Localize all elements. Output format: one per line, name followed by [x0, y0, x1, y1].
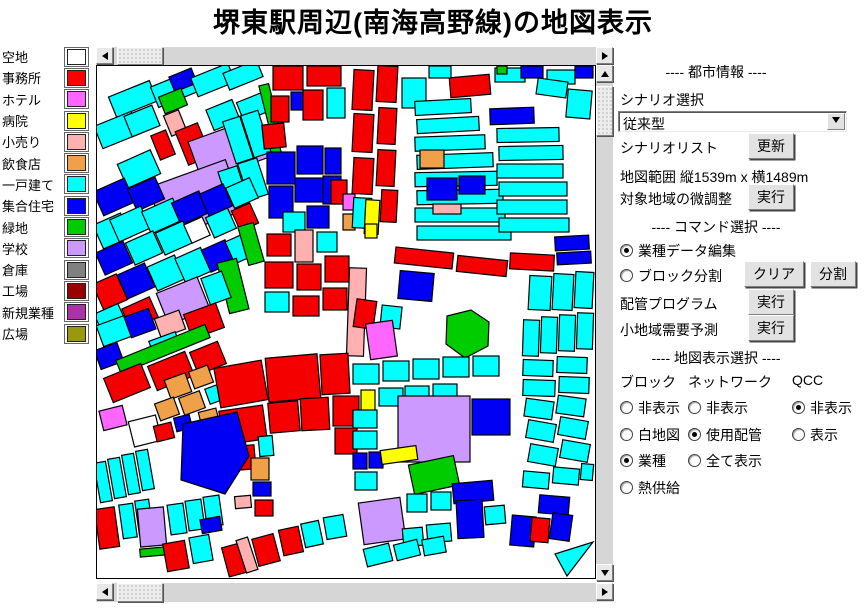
legend-color-icon	[67, 91, 86, 107]
map-parcel[interactable]	[528, 275, 552, 310]
demand-label: 小地域需要予測	[620, 322, 718, 338]
legend-item: 緑地	[2, 216, 89, 237]
map-parcel[interactable]	[295, 230, 313, 262]
legend-color-icon	[67, 198, 86, 214]
map-parcel[interactable]	[380, 190, 398, 223]
map-parcel[interactable]	[443, 357, 469, 377]
legend-item: 工場	[2, 280, 89, 301]
legend-item: 空地	[2, 46, 89, 67]
map-parcel[interactable]	[200, 516, 222, 533]
pipe-run-button[interactable]: 実行	[748, 289, 794, 315]
radio-label: 非表示	[706, 400, 748, 416]
map-parcel[interactable]	[293, 296, 319, 316]
map-parcel[interactable]	[297, 146, 323, 174]
legend-label: 新規業種	[2, 303, 64, 322]
map-parcel[interactable]	[522, 320, 539, 357]
legend-item: 倉庫	[2, 259, 89, 280]
map-parcel[interactable]	[499, 218, 569, 232]
map-parcel[interactable]	[394, 247, 453, 269]
radio-icon[interactable]	[688, 428, 701, 441]
map-parcel[interactable]	[449, 74, 491, 97]
legend-swatch-icon	[64, 68, 89, 88]
scroll-left-icon[interactable]	[96, 583, 113, 600]
map-parcel[interactable]	[295, 178, 325, 202]
radio-network-1[interactable]: 使用配管	[688, 425, 788, 452]
radio-label: 非表示	[638, 400, 680, 416]
map-parcel[interactable]	[376, 66, 398, 102]
map-parcel[interactable]	[140, 547, 167, 557]
map-parcel[interactable]	[417, 116, 480, 133]
map-parcel[interactable]	[417, 226, 511, 240]
map-parcel[interactable]	[427, 178, 457, 200]
radio-block-2[interactable]: 業種	[620, 451, 688, 478]
map-parcel[interactable]	[325, 148, 341, 174]
legend-swatch-icon	[64, 217, 89, 237]
map-parcel[interactable]	[355, 472, 377, 490]
map-parcel[interactable]	[353, 364, 379, 384]
legend-label: 学校	[2, 239, 64, 258]
pipe-label: 配管プログラム	[620, 296, 718, 312]
legend-color-icon	[67, 70, 86, 86]
radio-block-label: ブロック分割	[638, 268, 722, 284]
map-parcel[interactable]	[352, 114, 374, 153]
update-button[interactable]: 更新	[748, 133, 794, 159]
map-parcel[interactable]	[526, 420, 557, 443]
map-parcel[interactable]	[497, 127, 559, 142]
radio-network-2[interactable]: 全て表示	[688, 451, 788, 478]
map-parcel[interactable]	[267, 152, 295, 184]
map-parcel[interactable]	[327, 88, 345, 118]
map-parcel[interactable]	[407, 494, 427, 512]
map-parcel[interactable]	[363, 543, 393, 567]
map-parcel[interactable]	[580, 464, 593, 481]
legend-item: 小売り	[2, 131, 89, 152]
demand-row: 小地域需要予測 実行	[620, 320, 718, 340]
map-parcel[interactable]	[265, 262, 293, 288]
map-parcel[interactable]	[523, 359, 554, 376]
map-parcel[interactable]	[353, 410, 377, 428]
map-parcel[interactable]	[557, 356, 588, 373]
legend-item: 事務所	[2, 67, 89, 88]
chevron-down-icon	[832, 117, 840, 127]
scroll-up-icon[interactable]	[596, 65, 613, 82]
map-parcel[interactable]	[325, 256, 349, 282]
radio-icon[interactable]	[688, 454, 701, 467]
map-parcel[interactable]	[429, 66, 451, 78]
map-parcel[interactable]	[167, 503, 187, 535]
map-parcel[interactable]	[557, 251, 592, 265]
column-header-qcc: QCC	[788, 372, 866, 399]
column-header-network: ネットワーク	[688, 372, 788, 399]
map-parcel[interactable]	[189, 534, 213, 563]
radio-icon[interactable]	[792, 401, 805, 414]
map-parcel[interactable]	[273, 66, 303, 90]
legend-swatch-icon	[64, 281, 89, 301]
radio-block-1[interactable]: 白地図	[620, 425, 688, 452]
page-title: 堺東駅周辺(南海高野線)の地図表示	[0, 1, 866, 40]
map-parcel[interactable]	[283, 212, 305, 232]
left-arrow-icon	[98, 52, 108, 60]
map-parcel[interactable]	[393, 539, 420, 560]
adjust-label: 対象地域の微調整	[620, 191, 732, 207]
map-parcel[interactable]	[163, 540, 190, 571]
map-parcel[interactable]	[540, 317, 557, 354]
radio-icon[interactable]	[688, 401, 701, 414]
map-parcel[interactable]	[301, 520, 324, 547]
radio-empty-cell	[788, 478, 866, 505]
legend-swatch-icon	[64, 302, 89, 322]
split-button[interactable]: 分割	[810, 261, 856, 287]
right-arrow-icon	[602, 588, 612, 596]
legend-color-icon	[67, 113, 86, 129]
map-parcel[interactable]	[524, 398, 554, 420]
map-parcel[interactable]	[456, 255, 507, 276]
vscroll-thumb[interactable]	[596, 86, 613, 136]
map-parcel[interactable]	[377, 108, 397, 145]
map-parcel[interactable]	[119, 503, 138, 539]
scroll-right-icon[interactable]	[596, 47, 613, 64]
map-parcel[interactable]	[153, 422, 174, 442]
map-parcel[interactable]	[97, 507, 120, 549]
radio-icon[interactable]	[620, 428, 633, 441]
map-parcel[interactable]	[251, 458, 269, 480]
adjust-run-button[interactable]: 実行	[748, 184, 794, 210]
scenario-select[interactable]: 従来型	[618, 111, 847, 132]
hscroll-thumb-bottom[interactable]	[117, 583, 163, 602]
map-parcel[interactable]	[459, 176, 485, 194]
legend-swatch-icon	[64, 153, 89, 173]
map-parcel[interactable]	[253, 482, 271, 496]
map-parcel[interactable]	[433, 204, 461, 214]
legend-color-icon	[67, 176, 86, 192]
legend-label: 集合住宅	[2, 196, 64, 215]
map-parcel[interactable]	[415, 99, 472, 116]
map-parcel[interactable]	[265, 292, 289, 312]
map-parcel[interactable]	[352, 70, 374, 111]
map-parcel[interactable]	[376, 150, 396, 187]
radio-qcc-0[interactable]: 非表示	[788, 398, 866, 425]
scenario-selected-value: 従来型	[623, 114, 665, 134]
map-parcel[interactable]	[415, 135, 485, 151]
map-parcel[interactable]	[267, 234, 291, 256]
map-parcel[interactable]	[352, 158, 374, 195]
map-parcel[interactable]	[523, 379, 556, 396]
map-parcel[interactable]	[258, 435, 274, 456]
legend-color-icon	[67, 155, 86, 171]
map-parcel[interactable]	[181, 412, 249, 494]
column-header-block: ブロック	[620, 372, 688, 399]
map-parcel[interactable]	[104, 363, 151, 402]
map-parcel[interactable]	[307, 206, 329, 228]
scenario-list-label: シナリオリスト	[620, 140, 718, 156]
map-parcel[interactable]	[530, 517, 550, 542]
map-parcel[interactable]	[265, 354, 321, 402]
map-parcel[interactable]	[303, 90, 323, 120]
map-parcel[interactable]	[446, 310, 489, 358]
legend-swatch-icon	[64, 196, 89, 216]
legend-color-icon	[67, 326, 86, 342]
map-parcel[interactable]	[353, 453, 367, 469]
left-arrow-icon	[98, 588, 108, 596]
map-parcel[interactable]	[575, 66, 593, 78]
right-arrow-icon	[602, 52, 612, 60]
legend-item: 新規業種	[2, 302, 89, 323]
legend-label: 広場	[2, 324, 64, 343]
map-parcel[interactable]	[383, 361, 409, 381]
map-parcel[interactable]	[497, 200, 567, 214]
map-parcel[interactable]	[279, 526, 304, 556]
legend-swatch-icon	[64, 89, 89, 109]
map-parcel[interactable]	[473, 356, 499, 376]
up-arrow-icon	[601, 67, 609, 77]
map-parcel[interactable]	[472, 399, 510, 435]
hscroll-thumb-top[interactable]	[117, 47, 163, 65]
map-canvas[interactable]	[96, 65, 596, 579]
map-parcel[interactable]	[558, 417, 589, 440]
legend-swatch-icon	[64, 174, 89, 194]
map-parcel[interactable]	[558, 315, 575, 352]
map-parcel[interactable]	[456, 499, 484, 538]
legend-label: 倉庫	[2, 260, 64, 279]
legend-item: 集合住宅	[2, 195, 89, 216]
radio-label: 業種	[638, 453, 666, 469]
legend-color-icon	[67, 262, 86, 278]
map-viewport	[96, 47, 613, 603]
map-parcel[interactable]	[566, 89, 592, 119]
radio-block-0[interactable]: 非表示	[620, 398, 688, 425]
map-parcel[interactable]	[323, 288, 347, 310]
legend-item: 一戸建て	[2, 174, 89, 195]
legend-label: 空地	[2, 47, 64, 66]
radio-block-3[interactable]: 熱供給	[620, 478, 688, 505]
scenario-label: シナリオ選択	[620, 90, 704, 110]
clear-button[interactable]: クリア	[744, 261, 804, 287]
map-parcel[interactable]	[268, 401, 301, 434]
map-parcel[interactable]	[559, 376, 590, 393]
map-parcel[interactable]	[536, 78, 568, 98]
map-parcel[interactable]	[413, 359, 439, 379]
map-hscrollbar-top[interactable]	[96, 47, 613, 65]
radio-label: 熱供給	[638, 480, 680, 496]
radio-edit-label: 業種データ編集	[638, 243, 736, 259]
legend-color-icon	[67, 219, 86, 235]
map-parcel[interactable]	[555, 235, 590, 251]
map-parcel[interactable]	[549, 513, 572, 542]
map-parcel[interactable]	[300, 397, 330, 430]
scroll-left-icon[interactable]	[96, 47, 113, 64]
map-parcel[interactable]	[522, 471, 549, 489]
legend-item: 病院	[2, 110, 89, 131]
radio-label: 白地図	[638, 427, 680, 443]
demand-run-button[interactable]: 実行	[748, 315, 794, 341]
legend-color-icon	[67, 240, 86, 256]
map-parcel[interactable]	[323, 514, 347, 539]
radio-icon[interactable]	[620, 454, 633, 467]
map-parcel[interactable]	[556, 395, 586, 417]
pipe-row: 配管プログラム 実行	[620, 294, 718, 314]
legend-color-icon	[67, 304, 86, 320]
legend: 空地事務所ホテル病院小売り飲食店一戸建て集合住宅緑地学校倉庫工場新規業種広場	[2, 46, 89, 344]
legend-color-icon	[67, 134, 86, 150]
legend-swatch-icon	[64, 132, 89, 152]
map-parcel[interactable]	[271, 96, 289, 122]
radio-icon[interactable]	[620, 481, 633, 494]
map-parcel[interactable]	[576, 313, 593, 350]
radio-qcc-1[interactable]: 表示	[788, 425, 866, 452]
legend-item: 飲食店	[2, 152, 89, 173]
map-parcel[interactable]	[552, 274, 574, 311]
legend-item: 広場	[2, 323, 89, 344]
display-radio-grid: 非表示非表示非表示白地図使用配管表示業種全て表示熱供給	[620, 398, 866, 504]
map-parcel[interactable]	[422, 536, 446, 556]
adjust-row: 対象地域の微調整 実行	[620, 189, 732, 209]
map-parcel[interactable]	[538, 495, 569, 516]
radio-empty-cell	[688, 478, 788, 505]
map-parcel[interactable]	[560, 440, 591, 463]
map-parcel[interactable]	[484, 505, 505, 525]
down-arrow-icon	[601, 570, 609, 580]
map-hscrollbar-bottom[interactable]	[96, 583, 613, 602]
legend-item: ホテル	[2, 89, 89, 110]
section-command: ---- コマンド選択 ----	[616, 217, 816, 237]
map-parcel[interactable]	[99, 405, 127, 430]
legend-color-icon	[67, 283, 86, 299]
app-window: 堺東駅周辺(南海高野線)の地図表示 空地事務所ホテル病院小売り飲食店一戸建て集合…	[0, 0, 866, 612]
radio-block-split[interactable]: ブロック分割 クリア 分割	[620, 266, 722, 286]
map-parcel[interactable]	[499, 145, 563, 160]
legend-label: ホテル	[2, 90, 64, 109]
map-vscrollbar[interactable]	[596, 65, 613, 581]
map-parcel[interactable]	[214, 360, 268, 408]
display-column-headers: ブロック ネットワーク QCC	[620, 372, 866, 399]
legend-label: 一戸建て	[2, 175, 64, 194]
scenario-list-row: シナリオリスト 更新	[620, 138, 718, 158]
legend-swatch-icon	[64, 111, 89, 131]
map-parcel[interactable]	[366, 320, 398, 359]
radio-label: 非表示	[810, 400, 852, 416]
legend-label: 小売り	[2, 132, 64, 151]
legend-swatch-icon	[64, 324, 89, 344]
legend-swatch-icon	[64, 260, 89, 280]
legend-label: 緑地	[2, 218, 64, 237]
map-parcel[interactable]	[490, 107, 535, 125]
legend-label: 事務所	[2, 68, 64, 87]
map-parcel[interactable]	[499, 182, 567, 196]
radio-label: 全て表示	[706, 453, 762, 469]
map-parcel[interactable]	[398, 271, 434, 302]
radio-edit-business[interactable]: 業種データ編集	[620, 241, 736, 261]
legend-label: 病院	[2, 111, 64, 130]
legend-color-icon	[67, 49, 86, 65]
map-parcel[interactable]	[353, 431, 377, 449]
legend-label: 飲食店	[2, 154, 64, 173]
map-parcel[interactable]	[497, 66, 507, 74]
scroll-right-icon[interactable]	[596, 583, 613, 600]
map-parcel[interactable]	[297, 264, 321, 290]
radio-label: 使用配管	[706, 427, 762, 443]
combo-dropdown-button[interactable]	[827, 113, 845, 130]
map-parcel[interactable]	[255, 500, 273, 516]
legend-swatch-icon	[64, 238, 89, 258]
map-parcel[interactable]	[552, 467, 579, 485]
map-parcel[interactable]	[262, 123, 286, 149]
radio-icon[interactable]	[620, 401, 633, 414]
map-parcel[interactable]	[528, 444, 559, 467]
map-parcel[interactable]	[521, 66, 543, 78]
map-parcel[interactable]	[307, 66, 341, 86]
scroll-down-icon[interactable]	[596, 564, 613, 581]
map-parcel[interactable]	[358, 497, 405, 544]
map-parcel[interactable]	[510, 253, 555, 271]
map-canvas-svg	[97, 66, 595, 578]
radio-label: 表示	[810, 427, 838, 443]
legend-item: 学校	[2, 238, 89, 259]
map-parcel[interactable]	[431, 492, 451, 510]
map-parcel[interactable]	[574, 272, 594, 309]
legend-label: 工場	[2, 281, 64, 300]
radio-icon[interactable]	[792, 428, 805, 441]
map-parcel[interactable]	[320, 353, 350, 394]
map-parcel[interactable]	[555, 542, 593, 576]
section-city-info: ---- 都市情報 ----	[616, 62, 816, 82]
map-parcel[interactable]	[137, 507, 166, 547]
radio-empty-cell	[788, 451, 866, 478]
section-display-select: ---- 地図表示選択 ----	[616, 348, 816, 368]
map-parcel[interactable]	[420, 150, 444, 168]
map-parcel[interactable]	[317, 232, 337, 252]
radio-icon[interactable]	[620, 244, 633, 257]
radio-icon[interactable]	[620, 269, 633, 282]
map-parcel[interactable]	[235, 495, 252, 508]
map-parcel[interactable]	[497, 164, 563, 178]
map-parcel[interactable]	[365, 224, 377, 238]
legend-swatch-icon	[64, 47, 89, 67]
radio-network-0[interactable]: 非表示	[688, 398, 788, 425]
